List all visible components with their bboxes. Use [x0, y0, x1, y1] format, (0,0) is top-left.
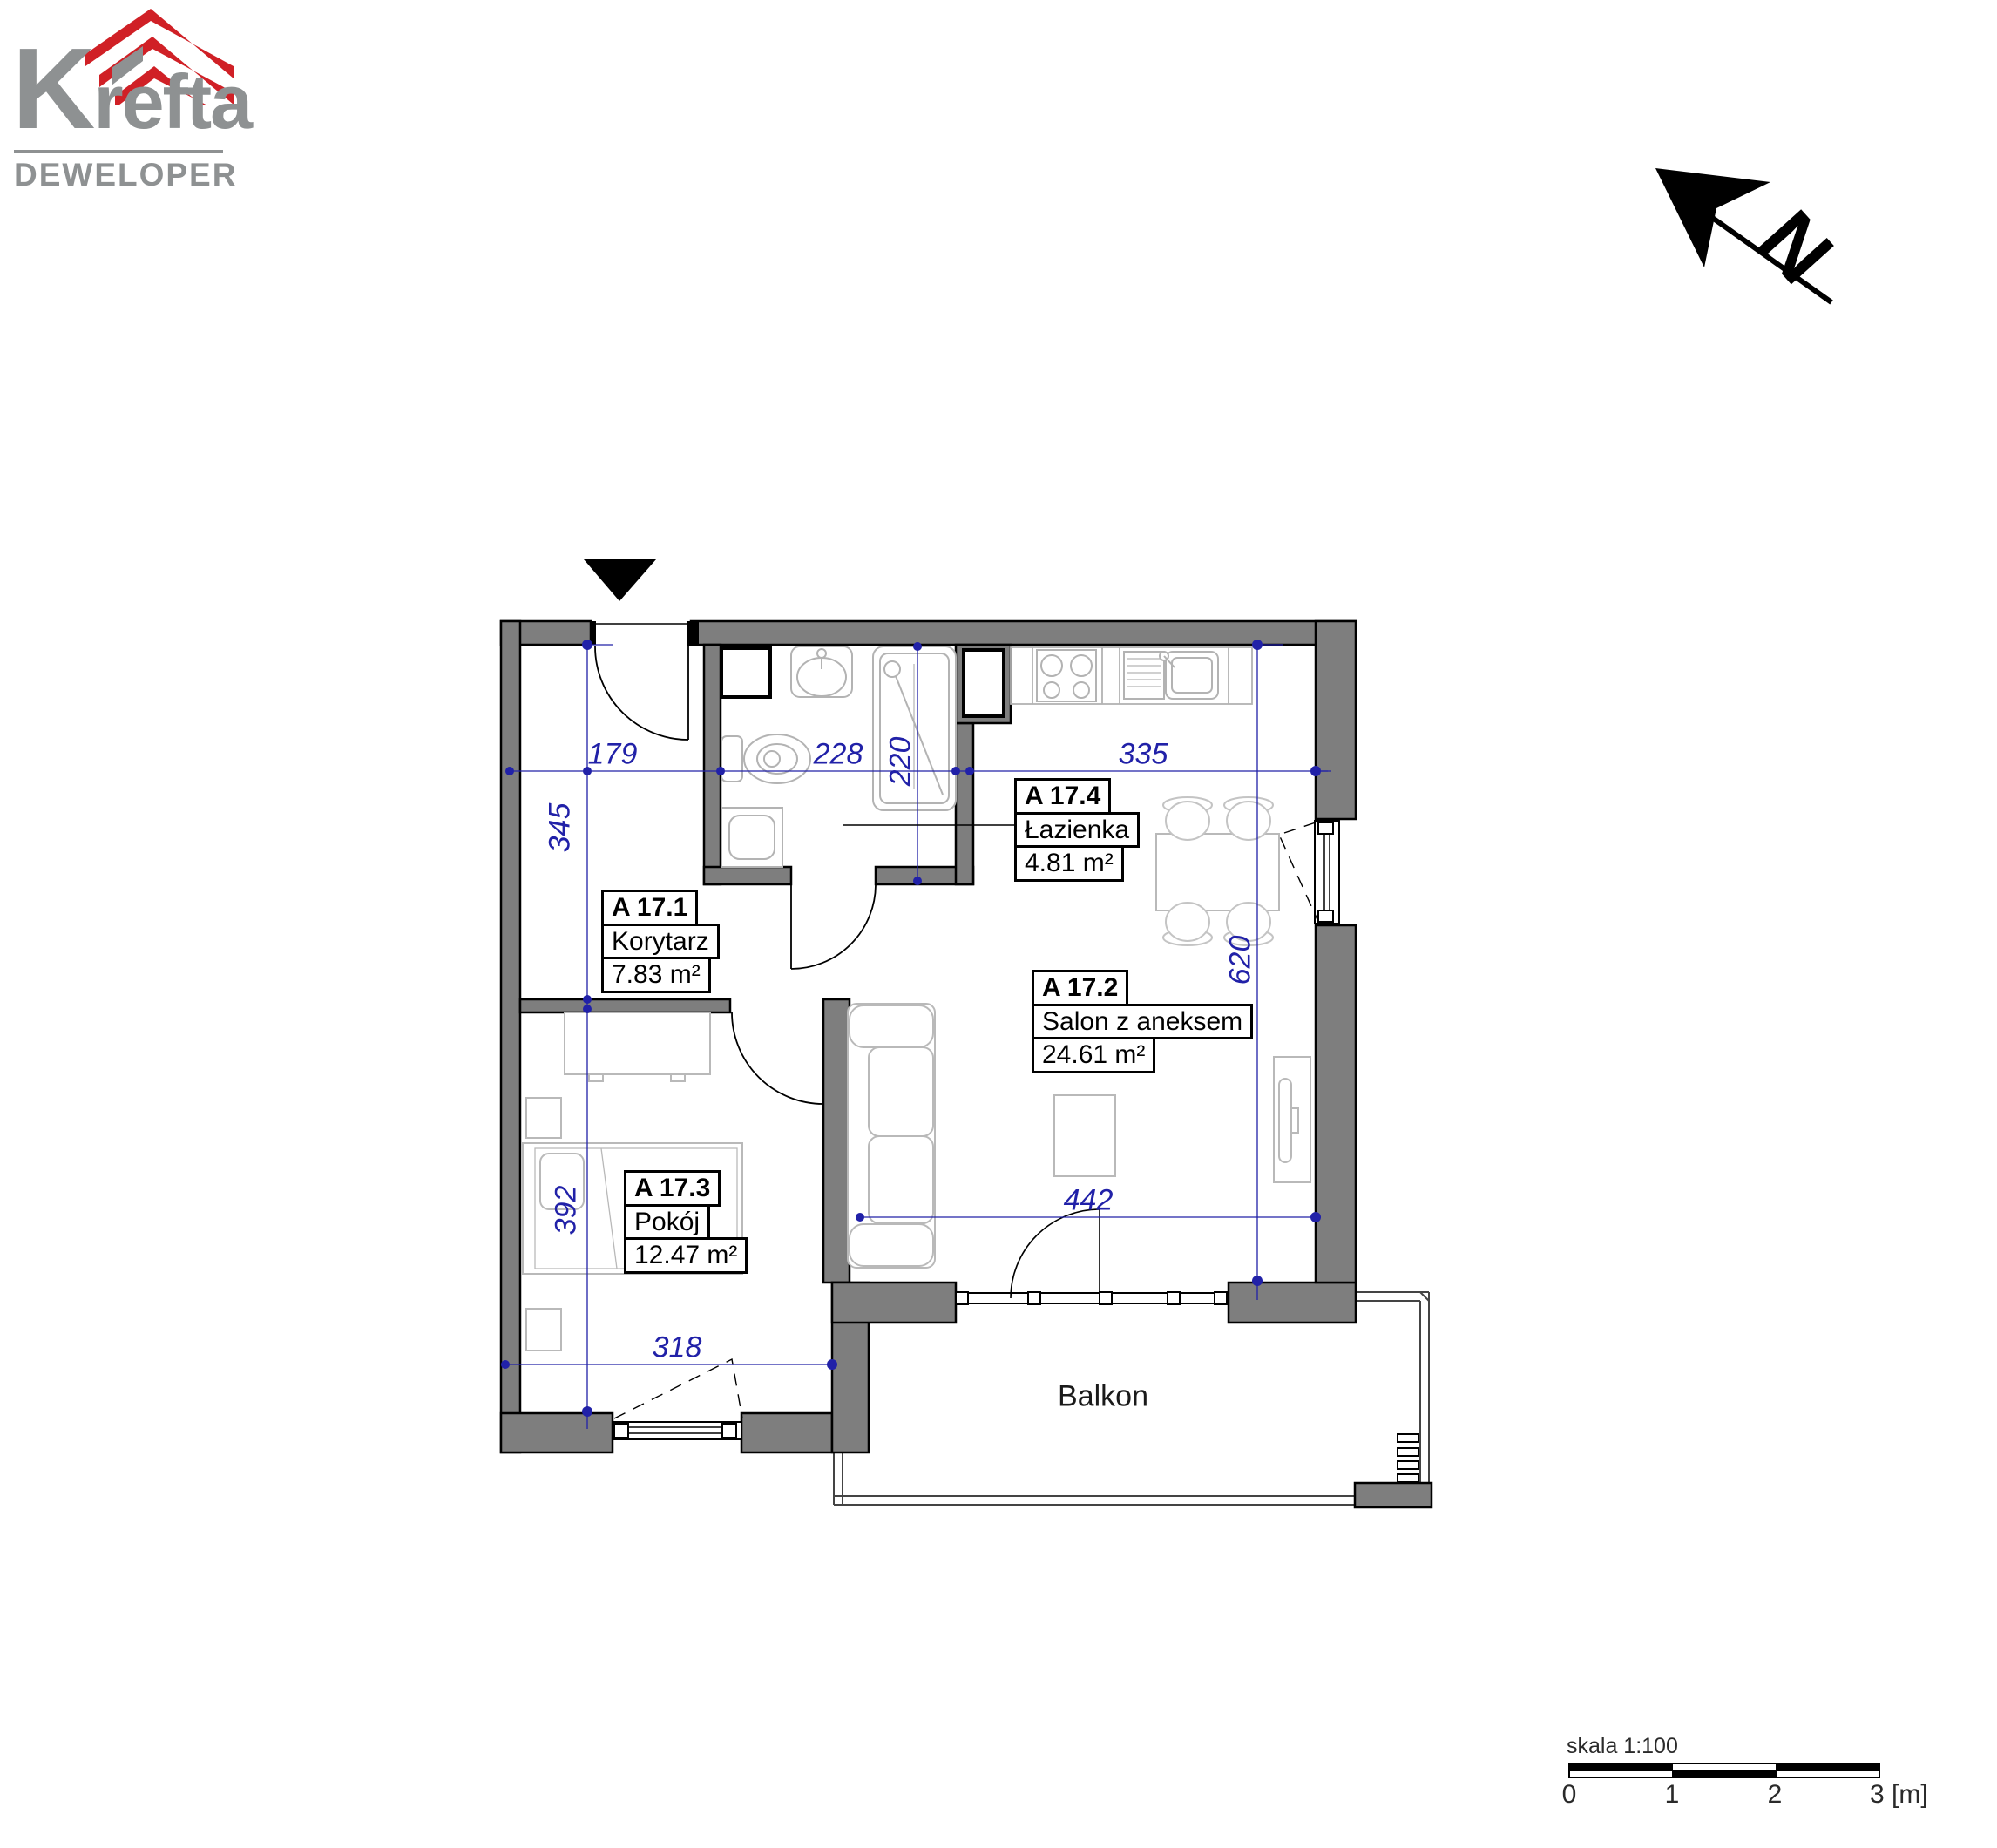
dim-bath-width: 228: [814, 738, 863, 772]
scalebar-tick-3: 3 [m]: [1870, 1780, 1928, 1810]
scalebar-segment: [1672, 1770, 1777, 1778]
dim-kitchen-width: 335: [1119, 738, 1168, 772]
dim-bedroom-depth: 392: [550, 1186, 584, 1235]
dim-bath-depth: 220: [884, 737, 918, 787]
balcony-drain-hatch: [1398, 1434, 1418, 1482]
right-window: [1315, 821, 1339, 924]
nightstand-bottom: [526, 1309, 561, 1350]
scalebar: [1568, 1763, 1880, 1778]
scalebar-tick-2: 2: [1768, 1780, 1783, 1810]
tv-cabinet: [1274, 1057, 1310, 1182]
coffee-table: [1054, 1095, 1115, 1176]
room-label-lazienka: A 17.4 Łazienka 4.81 m²: [1014, 781, 1140, 882]
entrance-arrow-icon: [584, 559, 656, 601]
room-name: Salon z aneksem: [1032, 1004, 1253, 1040]
room-id: A 17.2: [1032, 970, 1128, 1006]
washing-machine: [721, 808, 782, 867]
balcony-pillar: [1355, 1483, 1432, 1507]
room-name: Łazienka: [1014, 812, 1140, 849]
entrance-jambs: [591, 621, 699, 646]
bathroom-sink: [791, 646, 852, 697]
scalebar-title: skala 1:100: [1567, 1734, 1678, 1759]
room-area: 7.83 m²: [601, 957, 711, 993]
floorplan-drawing: [0, 0, 1997, 1848]
room-name: Korytarz: [601, 924, 720, 960]
floorplan-page: Krefta DEWELOPER N: [0, 0, 1997, 1848]
dim-hall-width: 179: [588, 738, 638, 772]
entrance-door: [595, 646, 688, 740]
nightstand-top: [526, 1098, 561, 1138]
room-id: A 17.4: [1014, 778, 1111, 815]
scalebar-segment: [1569, 1770, 1674, 1778]
room-label-korytarz: A 17.1 Korytarz 7.83 m²: [601, 892, 720, 993]
kitchen-sink: [1124, 652, 1218, 699]
dim-hall-depth: 345: [544, 803, 578, 853]
bedroom-window: [613, 1422, 741, 1439]
room-label-pokoj: A 17.3 Pokój 12.47 m²: [624, 1173, 748, 1274]
bathroom-door: [791, 884, 876, 969]
dresser: [565, 1012, 710, 1081]
dining-table: [1156, 834, 1279, 910]
scalebar-tick-0: 0: [1562, 1780, 1577, 1810]
balcony-label: Balkon: [1058, 1380, 1148, 1414]
room-name: Pokój: [624, 1204, 710, 1241]
sofa: [848, 1004, 935, 1268]
scalebar-segment: [1776, 1770, 1880, 1778]
dim-bedroom-width: 318: [653, 1331, 702, 1365]
room-id: A 17.3: [624, 1170, 721, 1207]
scalebar-tick-1: 1: [1665, 1780, 1680, 1810]
toilet: [721, 734, 810, 783]
room-area: 4.81 m²: [1014, 845, 1124, 882]
dim-salon-width: 442: [1064, 1184, 1114, 1218]
stove: [1037, 650, 1096, 701]
window-opening-dashes: [614, 822, 1319, 1418]
balcony-door-swing: [1011, 1209, 1100, 1298]
living-room-door: [732, 1012, 823, 1104]
dim-salon-depth: 620: [1224, 936, 1258, 985]
room-id: A 17.1: [601, 890, 698, 926]
room-label-salon: A 17.2 Salon z aneksem 24.61 m²: [1032, 972, 1253, 1073]
balcony-sliding-door: [956, 1292, 1227, 1304]
room-area: 12.47 m²: [624, 1237, 748, 1274]
room-area: 24.61 m²: [1032, 1037, 1155, 1073]
